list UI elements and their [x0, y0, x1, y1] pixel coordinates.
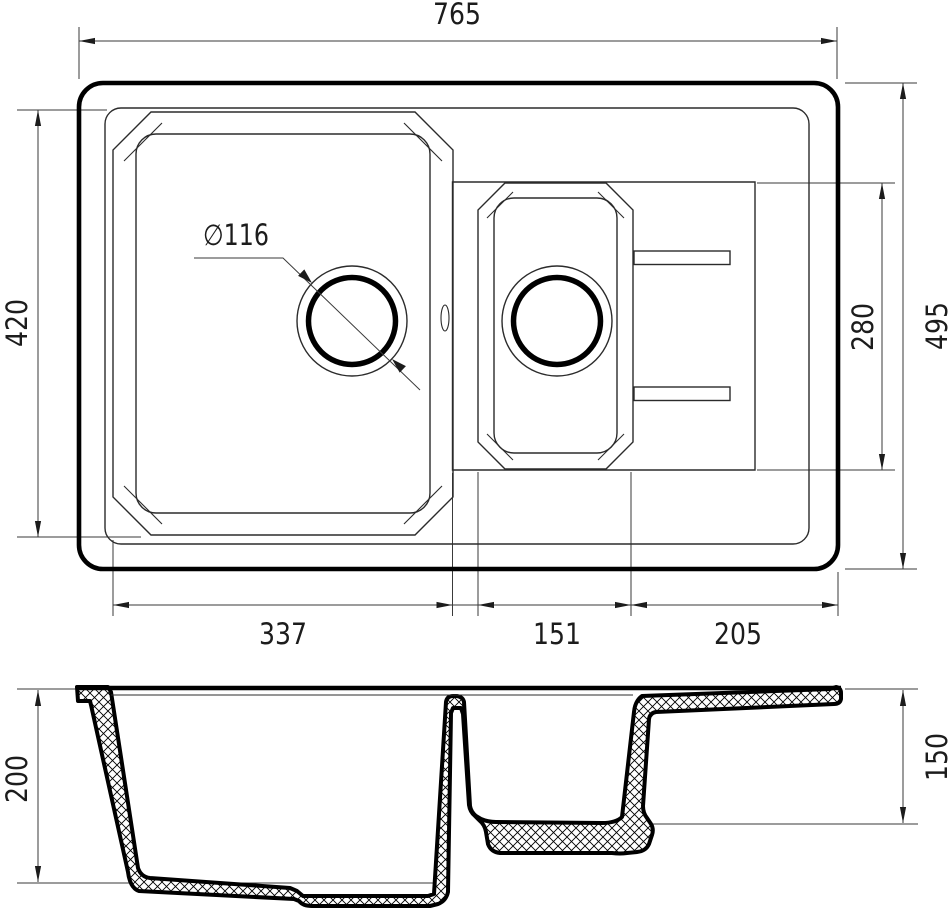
- dim-main-bowl-depth-label: 200: [0, 755, 34, 803]
- top-view: 765 420 495 280 337 151 205 ∅116: [0, 0, 951, 651]
- dim-main-bowl-height-label: 420: [0, 299, 34, 347]
- dimension-lines-top: [17, 27, 917, 616]
- drainer-rib-top: [634, 251, 730, 265]
- section-view: 200 150: [0, 687, 951, 906]
- dim-small-bowl-depth-label: 150: [920, 733, 951, 781]
- sink-technical-drawing: 765 420 495 280 337 151 205 ∅116 200 150: [0, 0, 951, 913]
- leader-arrow-icon: [389, 356, 406, 373]
- small-bowl: [478, 183, 633, 469]
- main-drain-outline: [297, 266, 407, 376]
- dim-small-bowl-height-label: 280: [846, 303, 880, 351]
- dim-overall-depth-label: 495: [920, 302, 951, 350]
- main-drain-hole: [309, 278, 396, 365]
- dim-main-bowl-width-label: 337: [259, 617, 307, 651]
- drainer-recess: [453, 182, 756, 470]
- dim-drainer-width-label: 205: [714, 617, 762, 651]
- main-bowl: [113, 112, 453, 535]
- faucet-hole: [441, 305, 449, 331]
- sink-inner-rim: [105, 108, 809, 544]
- sink-outer-edge: [79, 83, 838, 569]
- drainer-rib-bottom: [634, 387, 730, 401]
- dim-drain-diameter-label: ∅116: [203, 218, 269, 252]
- leader-arrow-icon: [298, 269, 315, 286]
- section-shell-profile: [77, 687, 841, 906]
- dim-overall-width-label: 765: [433, 0, 481, 31]
- drawing-page: 765 420 495 280 337 151 205 ∅116 200 150: [0, 0, 951, 913]
- small-drain-hole: [514, 278, 601, 365]
- small-drain-outline: [502, 266, 612, 376]
- dim-small-bowl-width-label: 151: [533, 617, 581, 651]
